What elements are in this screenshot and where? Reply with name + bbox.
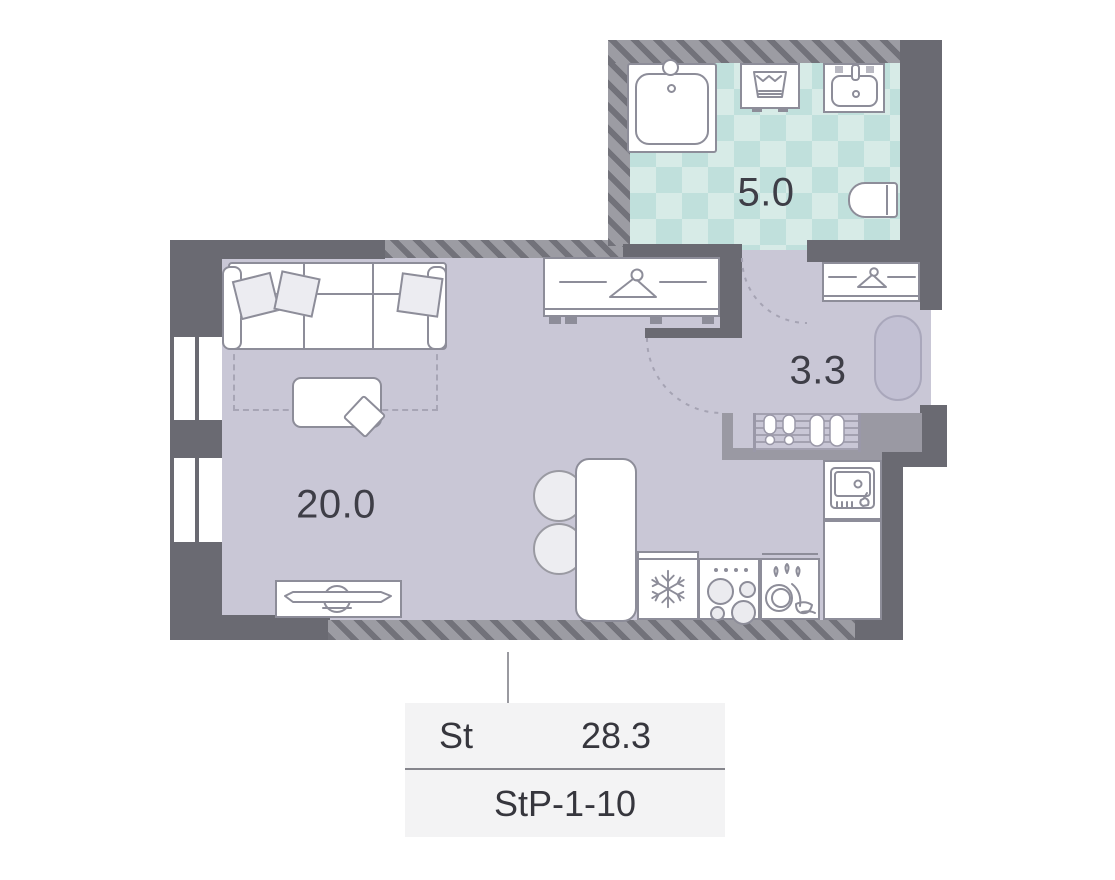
wall-top-living-hatched xyxy=(385,240,623,258)
kitchen-sink-icon xyxy=(825,462,880,518)
washing-machine xyxy=(740,63,800,109)
wall-bathroom-right xyxy=(900,40,942,243)
hallway-coat-rack xyxy=(822,262,920,302)
stove-knob xyxy=(724,568,728,572)
window-upper-outer xyxy=(174,337,195,420)
hallway-rug xyxy=(874,315,922,401)
bath-sink-faucet-icon xyxy=(851,64,860,81)
toilet-cistern-line xyxy=(886,185,888,215)
shoe-mat-icon xyxy=(756,413,858,448)
legend-row-top: St 28.3 xyxy=(405,703,725,770)
shower-head-icon xyxy=(662,59,679,76)
dishwasher-counter-line xyxy=(762,553,818,555)
legend-area-cell: 28.3 xyxy=(507,703,725,768)
stove-knob xyxy=(744,568,748,572)
legend-type-cell: St xyxy=(405,703,507,768)
bathroom-sink xyxy=(823,63,885,113)
wardrobe-foot xyxy=(565,317,577,324)
stove-burner xyxy=(731,600,756,625)
stove-knob xyxy=(734,568,738,572)
wall-top-living xyxy=(170,240,385,259)
wall-kitchen-right xyxy=(882,452,903,640)
snowflake-icon xyxy=(647,568,689,610)
hallway-area-label: 3.3 xyxy=(789,349,846,394)
sofa-pillow xyxy=(273,270,320,317)
dishwasher xyxy=(760,558,820,620)
stove-burner xyxy=(710,606,725,621)
window-upper-inner xyxy=(199,337,222,420)
fridge xyxy=(637,558,699,620)
wall-left xyxy=(170,240,222,640)
coat-rack-shelf-line xyxy=(824,295,918,297)
sofa-seat-divider xyxy=(372,263,374,349)
wall-partition-vertical xyxy=(720,246,742,338)
wardrobe xyxy=(543,257,720,317)
stove-knob xyxy=(714,568,718,572)
stove-burner xyxy=(707,578,734,605)
kitchen-sink xyxy=(823,460,882,520)
floor-plan: 20.0 5.0 3.3 St 28.3 StP-1-10 xyxy=(0,0,1115,880)
kitchen-counter xyxy=(823,520,882,620)
window-lower-outer xyxy=(174,458,195,542)
washer-foot xyxy=(778,108,788,112)
toilet xyxy=(848,182,898,218)
wardrobe-foot xyxy=(650,317,662,324)
wall-hallway-right xyxy=(920,240,942,310)
wardrobe-track-line xyxy=(545,308,718,310)
total-area-label: 28.3 xyxy=(581,715,651,757)
wall-bathroom-top-hatched xyxy=(608,40,942,63)
legend: St 28.3 StP-1-10 xyxy=(405,703,725,837)
apartment-type-label: St xyxy=(439,715,473,757)
shower-drain-icon xyxy=(667,84,676,93)
hanger-icon xyxy=(828,267,916,293)
wall-entry-side-medium xyxy=(860,413,922,452)
wall-entry-corner xyxy=(920,405,947,455)
hanger-icon xyxy=(558,267,708,305)
living-area-label: 20.0 xyxy=(296,483,376,528)
stove xyxy=(698,558,760,620)
bathroom-area-label: 5.0 xyxy=(737,171,794,216)
wall-bottom-hatched xyxy=(328,620,858,640)
unit-code-label: StP-1-10 xyxy=(494,783,636,825)
bath-sink-tap-right xyxy=(866,66,874,73)
wardrobe-foot xyxy=(549,317,561,324)
washer-foot xyxy=(752,108,762,112)
shower-tray xyxy=(627,63,717,153)
wall-bottom-left xyxy=(170,615,330,640)
tv-icon xyxy=(277,582,400,616)
tv-stand xyxy=(275,580,402,618)
washing-machine-icon xyxy=(742,65,798,107)
sofa-pillow xyxy=(396,272,443,317)
window-lower-inner xyxy=(199,458,222,542)
bath-sink-tap-left xyxy=(835,66,843,73)
dining-table xyxy=(575,458,637,622)
wall-partition-stub xyxy=(645,328,742,338)
wardrobe-foot xyxy=(702,317,714,324)
stove-burner xyxy=(739,581,756,598)
bath-sink-drain xyxy=(852,90,860,98)
shoe-mat xyxy=(753,413,861,452)
legend-row-bottom: StP-1-10 xyxy=(405,770,725,837)
wall-entry-corner-lower xyxy=(903,450,947,467)
dishwasher-icon xyxy=(762,560,818,618)
